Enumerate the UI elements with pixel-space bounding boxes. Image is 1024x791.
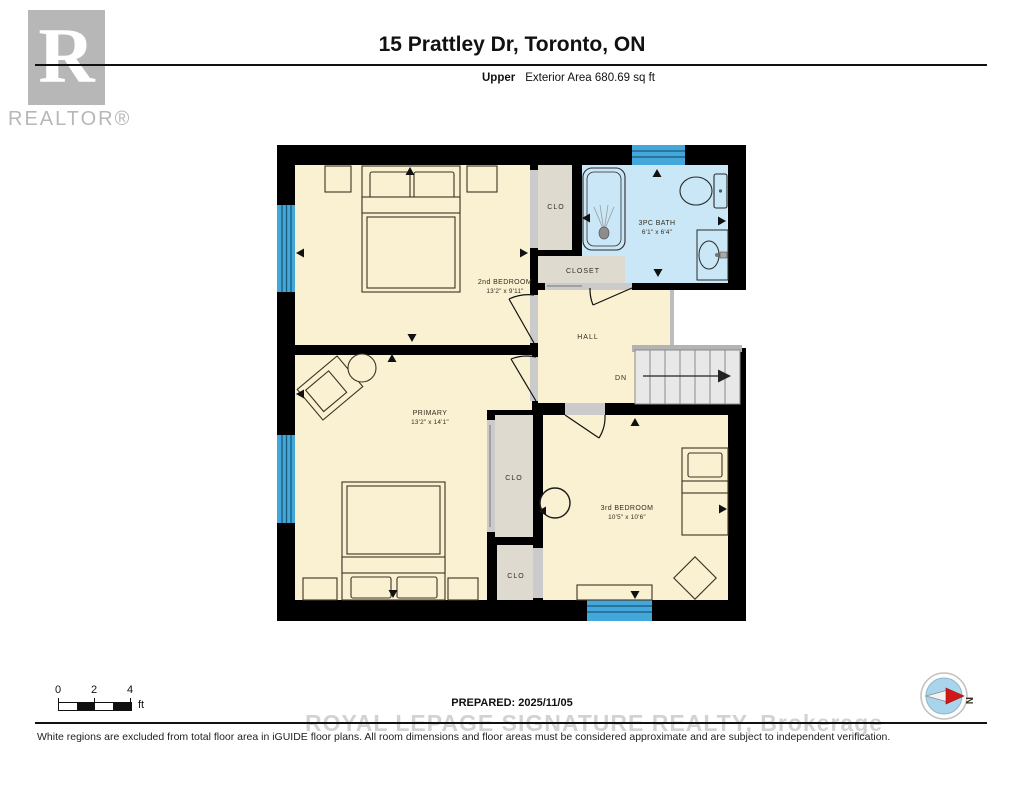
disclaimer-text: White regions are excluded from total fl… — [37, 731, 977, 743]
label-closet-lower: CLO — [507, 573, 524, 580]
bed-icon-3rd-bedroom — [682, 448, 728, 535]
dims-primary: 13'2" x 14'1" — [411, 419, 449, 426]
stool-icon — [348, 354, 376, 382]
sink-icon — [697, 230, 728, 280]
floor-label: Upper — [482, 72, 515, 84]
bathtub-icon — [583, 168, 625, 250]
label-2nd-bedroom: 2nd BEDROOM — [478, 279, 532, 286]
excluded-region — [670, 290, 746, 348]
page-title: 15 Prattley Dr, Toronto, ON — [0, 33, 1024, 57]
label-closet-upper: CLO — [505, 475, 522, 482]
realtor-logo-word: REALTOR® — [8, 108, 131, 131]
stairs — [632, 345, 742, 404]
label-primary: PRIMARY — [413, 410, 448, 417]
scale-tick-2: 2 — [88, 684, 100, 696]
label-closet-top: CLO — [547, 204, 564, 211]
bed-icon-primary — [342, 482, 445, 600]
label-hall: HALL — [577, 334, 599, 341]
label-closet-hall: CLOSET — [566, 268, 600, 275]
floor-subtitle: UpperExterior Area 680.69 sq ft — [482, 72, 655, 84]
dims-3rd-bedroom: 10'5" x 10'6" — [608, 514, 646, 521]
label-bath: 3PC BATH — [639, 220, 676, 227]
scale-tick-0: 0 — [52, 684, 64, 696]
dims-2nd-bedroom: 13'2" x 9'11" — [486, 288, 523, 295]
scale-tick-4: 4 — [124, 684, 136, 696]
footer-divider — [35, 722, 987, 724]
label-stairs-dn: DN — [615, 375, 627, 382]
realtor-logo: R — [28, 10, 105, 105]
exterior-area-label: Exterior Area 680.69 sq ft — [525, 72, 655, 84]
bench-icon — [577, 585, 652, 600]
title-divider — [35, 64, 987, 66]
floor-plan: 2nd BEDROOM 13'2" x 9'11" PRIMARY 13'2" … — [277, 145, 746, 621]
dims-bath: 6'1" x 6'4" — [642, 229, 672, 236]
label-3rd-bedroom: 3rd BEDROOM — [601, 505, 654, 512]
toilet-icon — [680, 174, 727, 208]
bed-icon-2nd-bedroom — [362, 166, 460, 292]
prepared-date: PREPARED: 2025/11/05 — [0, 697, 1024, 709]
